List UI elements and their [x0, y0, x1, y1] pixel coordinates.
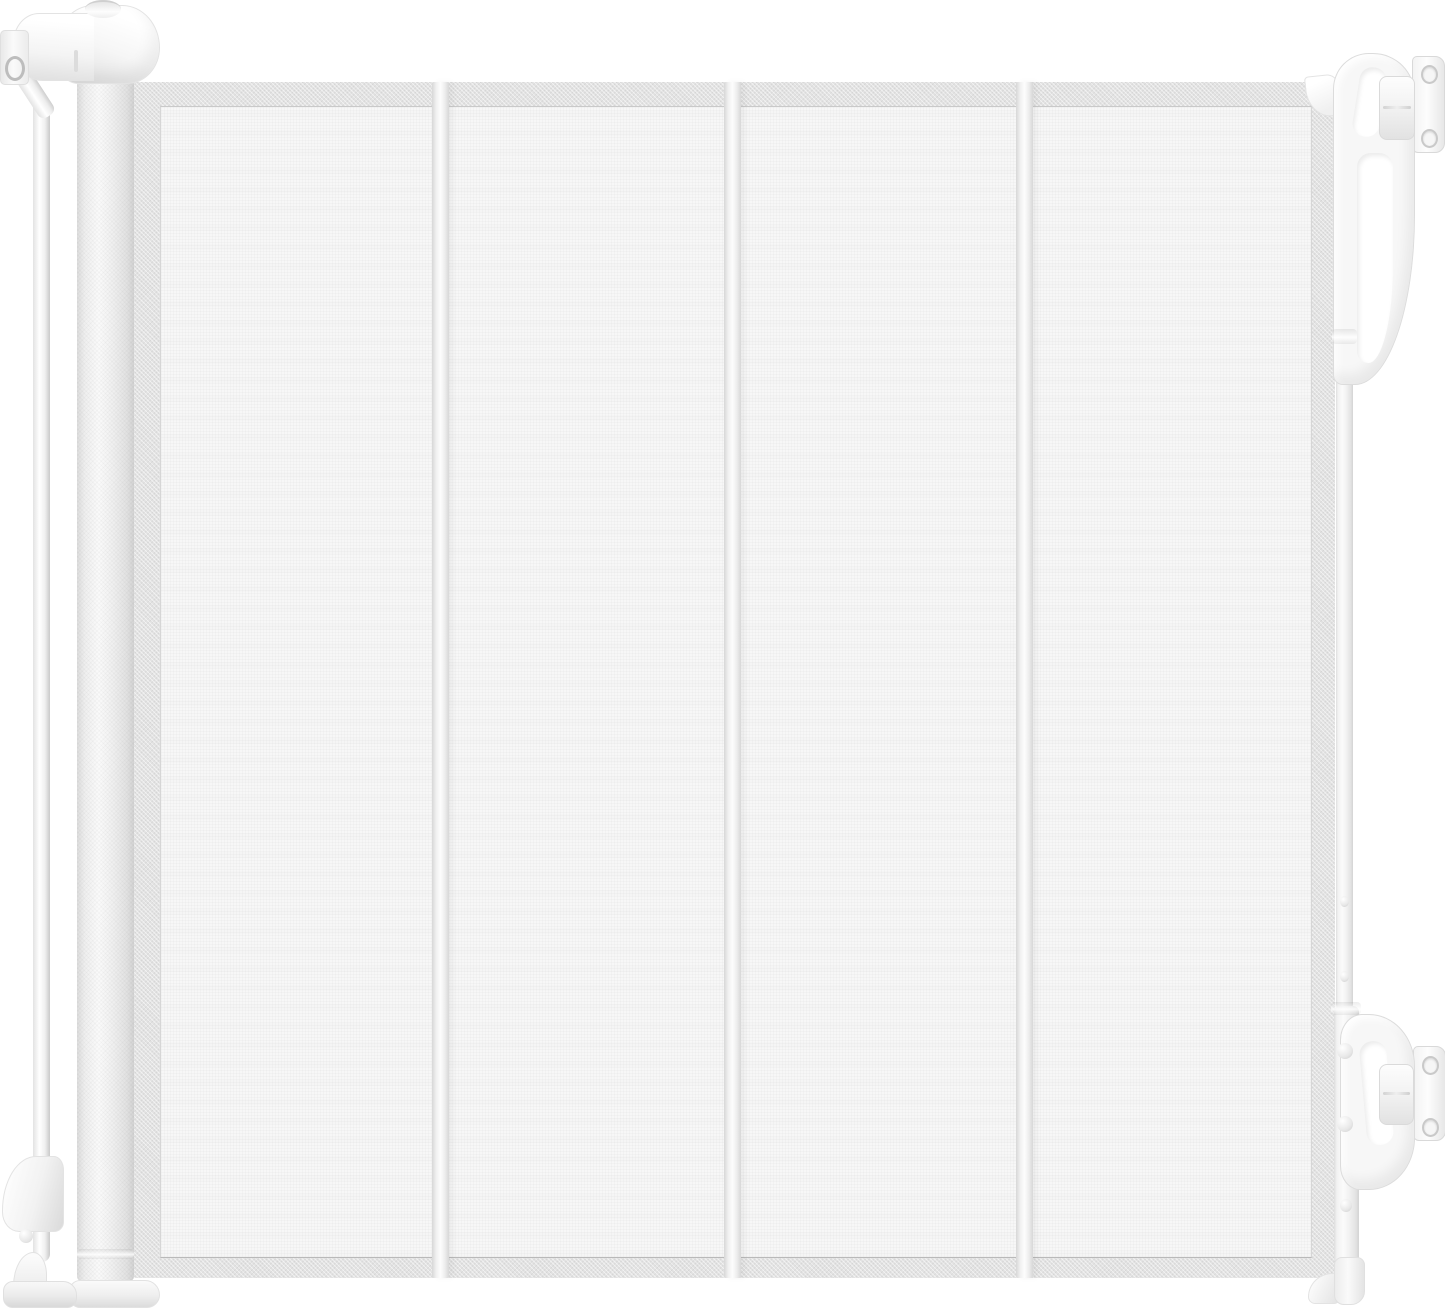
bracket-screw-hole	[1421, 129, 1438, 148]
top-latch-pivot	[1379, 76, 1415, 140]
pivot-ring-line	[1383, 106, 1412, 109]
wall-clamp-screw-hole	[5, 56, 25, 81]
pivot-ring-line	[1383, 1092, 1411, 1095]
latch-bar-foot	[1334, 1257, 1365, 1305]
bar-screw-boss-2	[1337, 1116, 1353, 1132]
bar-screw-dot-1	[1340, 896, 1349, 907]
pole-bracket-knob	[19, 1229, 33, 1243]
tension-pole	[33, 96, 50, 1262]
mesh-seam-2	[724, 82, 741, 1278]
roller-base-plate	[69, 1280, 160, 1308]
bracket-screw-hole	[1422, 1118, 1439, 1137]
roller-post-ring	[77, 1249, 134, 1259]
product-photo-stage	[0, 0, 1445, 1309]
bracket-screw-hole	[1422, 1056, 1439, 1075]
bar-screw-boss-3	[1340, 1199, 1352, 1212]
bar-screw-dot-2	[1340, 971, 1349, 982]
latch-bar-collar-lower	[1331, 1002, 1361, 1015]
roller-cap-crease	[74, 50, 78, 72]
mesh-seam-3	[1016, 82, 1033, 1278]
roller-cap-knob	[85, 0, 121, 18]
latch-bar-upper	[1336, 378, 1353, 1010]
bottom-latch-pivot	[1379, 1064, 1414, 1125]
pole-foot-plate	[3, 1281, 77, 1308]
mesh-seam-1	[432, 82, 449, 1278]
bracket-screw-hole	[1421, 65, 1438, 84]
pole-bracket	[2, 1156, 64, 1232]
roller-post	[77, 58, 134, 1282]
latch-bar-collar-upper	[1332, 329, 1357, 344]
bar-screw-boss-1	[1337, 1043, 1353, 1059]
